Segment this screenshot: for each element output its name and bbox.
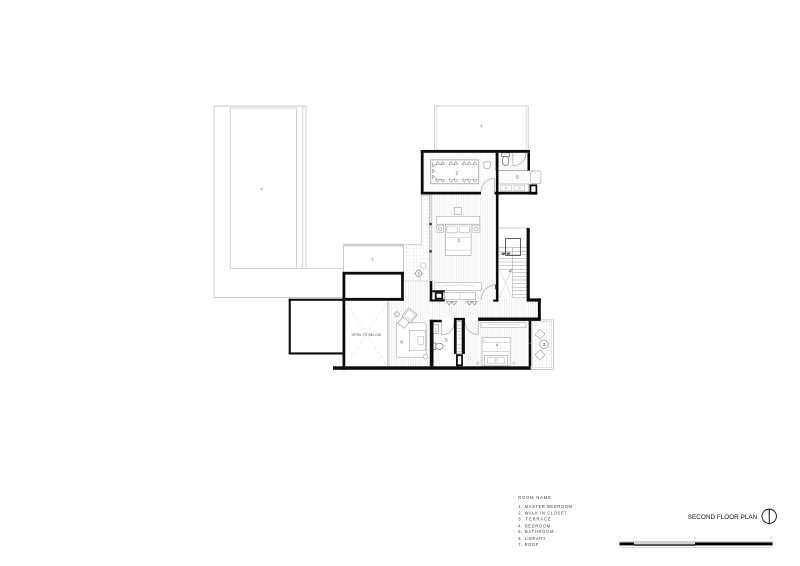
svg-text:0: 0 <box>618 536 620 540</box>
svg-text:SECOND FLOOR PLAN: SECOND FLOOR PLAN <box>688 514 758 521</box>
svg-text:10: 10 <box>769 536 773 540</box>
svg-text:5: 5 <box>694 536 696 540</box>
svg-text:6: 6 <box>400 340 403 345</box>
svg-text:1: 1 <box>633 536 635 540</box>
svg-text:6. LIBRARY: 6. LIBRARY <box>518 536 545 541</box>
svg-text:4. BEDROOM: 4. BEDROOM <box>518 523 550 528</box>
svg-text:2: 2 <box>456 170 459 175</box>
svg-text:5. BATHROOM: 5. BATHROOM <box>518 529 554 534</box>
svg-text:3. TERRACE: 3. TERRACE <box>518 517 551 522</box>
svg-text:1. MASTER BEDROOM: 1. MASTER BEDROOM <box>518 504 572 509</box>
svg-text:ROOM NAME: ROOM NAME <box>518 495 551 500</box>
svg-text:1: 1 <box>458 238 461 243</box>
svg-text:4: 4 <box>496 343 499 348</box>
svg-text:3: 3 <box>543 342 546 347</box>
svg-text:7. ROOF: 7. ROOF <box>518 542 538 547</box>
svg-text:5: 5 <box>445 337 448 342</box>
svg-text:2. WALK IN CLOSET: 2. WALK IN CLOSET <box>518 511 567 516</box>
svg-text:OPEN TO BELOW: OPEN TO BELOW <box>352 333 382 337</box>
svg-text:5: 5 <box>516 175 519 180</box>
